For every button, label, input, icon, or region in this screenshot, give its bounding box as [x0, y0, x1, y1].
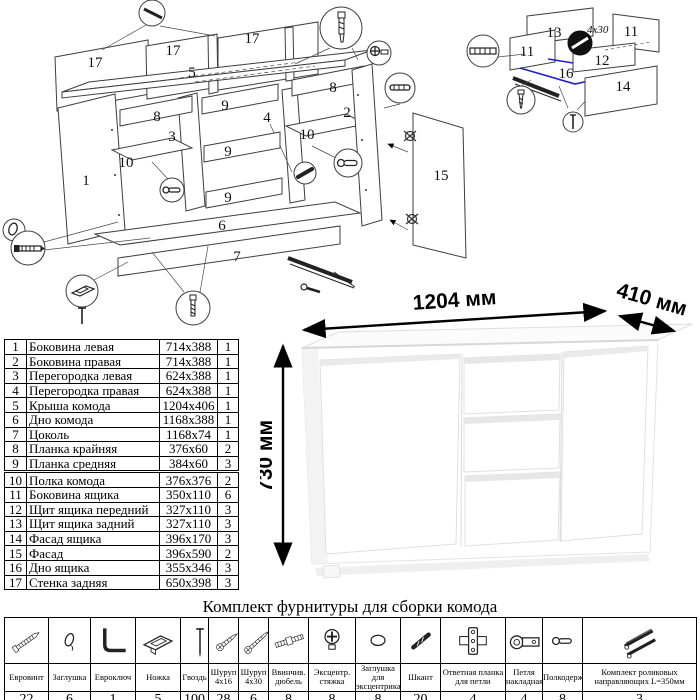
- part-qty-cell: 1: [218, 369, 239, 384]
- parts-table-row: 5 Крыша комода 1204x406 1: [5, 398, 239, 413]
- hardware-names-row: Евровинт Заглушка Евроключ Ножка Гвоздь …: [5, 664, 697, 692]
- drawer-rail-piece: [513, 78, 561, 101]
- hardware-qty-cell: 8: [309, 691, 356, 700]
- hardware-qty-cell: 8: [269, 691, 309, 700]
- parts-table-row: 2 Боковина правая 714x388 1: [5, 354, 239, 369]
- parts-table-row: 6 Дно комода 1168x388 1: [5, 412, 239, 427]
- hardware-icon-cell: [136, 618, 181, 664]
- parts-list-table: 1 Боковина левая 714x388 1 2 Боковина пр…: [4, 339, 239, 590]
- parts-table-row: 7 Цоколь 1168x74 1: [5, 427, 239, 442]
- hardware-name-cell: Петля накладная: [506, 664, 543, 692]
- parts-table-row: 1 Боковина левая 714x388 1: [5, 340, 239, 355]
- part-name-cell: Крыша комода: [27, 398, 160, 413]
- part-number-cell: 9: [5, 456, 27, 472]
- part-size-cell: 396x170: [160, 531, 218, 546]
- hardware-icon-cell: [49, 618, 91, 664]
- door-panel-15: [388, 113, 466, 258]
- hardware-icon-cell: [356, 618, 401, 664]
- part-name-cell: Планка крайняя: [27, 442, 160, 457]
- hardware-icon-cell: [5, 618, 49, 664]
- callout-plug-icon: [3, 219, 25, 241]
- parts-table-row: 11 Боковина ящика 350x110 6: [5, 487, 239, 502]
- part-name-cell: Фасад ящика: [27, 531, 160, 546]
- callout-foot-icon: [66, 262, 128, 324]
- part-size-cell: 714x388: [160, 354, 218, 369]
- hardware-item-icon: [139, 622, 177, 660]
- drawer-side-11-left: [510, 30, 555, 70]
- roller-rail-piece: [288, 258, 355, 292]
- part-name-cell: Щит ящика передний: [27, 502, 160, 517]
- hardware-icon-cell: [441, 618, 506, 664]
- drawer-fascia-14: [585, 66, 657, 116]
- part-qty-cell: 1: [218, 427, 239, 442]
- back-panels-17: [55, 22, 318, 111]
- part-number-cell: 5: [5, 398, 27, 413]
- hardware-name-cell: Ножка: [136, 664, 181, 692]
- drawer-3: [465, 472, 560, 546]
- parts-table-row: 12 Щит ящика передний 327x110 3: [5, 502, 239, 517]
- hardware-item-icon: [544, 622, 582, 660]
- part-number-cell: 16: [5, 560, 27, 575]
- parts-table-row: 13 Щит ящика задний 327x110 3: [5, 517, 239, 532]
- callout-screw-4x30-icon: [568, 31, 592, 55]
- hardware-qty-cell: 5: [136, 691, 181, 700]
- right-door: [561, 346, 648, 541]
- drawer-label-14: 14: [616, 79, 632, 95]
- part-number-cell: 11: [5, 487, 27, 502]
- hardware-item-icon: [181, 622, 209, 660]
- hardware-item-icon: [313, 622, 351, 660]
- hardware-item-icon: [402, 622, 440, 660]
- part-number-cell: 10: [5, 472, 27, 488]
- hardware-icon-cell: [269, 618, 309, 664]
- drawer-label-11a: 11: [520, 44, 534, 60]
- hardware-item-icon: [270, 622, 308, 660]
- part-size-cell: 624x388: [160, 369, 218, 384]
- part-number-cell: 13: [5, 517, 27, 532]
- parts-table-row: 9 Планка средняя 384x60 3: [5, 456, 239, 472]
- part-name-cell: Планка средняя: [27, 456, 160, 472]
- part-size-cell: 384x60: [160, 456, 218, 472]
- part-name-cell: Боковина правая: [27, 354, 160, 369]
- hardware-qty-cell: 28: [209, 691, 239, 700]
- part-qty-cell: 1: [218, 398, 239, 413]
- partition-right-4: [270, 87, 305, 203]
- part-label-15: 15: [434, 168, 449, 184]
- part-label-1: 1: [82, 173, 90, 189]
- drawer-assembly-diagram: 13 11 11 12 16 14 4x30: [455, 0, 700, 145]
- callout-screw-icon: [507, 80, 535, 114]
- drawer-1: [464, 354, 560, 414]
- partition-left-3: [178, 93, 205, 211]
- hardware-qty-cell: 20: [401, 691, 441, 700]
- hardware-icon-cell: [506, 618, 543, 664]
- part-size-cell: 327x110: [160, 517, 218, 532]
- hardware-qty-cell: 8: [356, 691, 401, 700]
- part-label-17a: 17: [88, 55, 104, 71]
- hardware-icon-cell: [543, 618, 583, 664]
- hardware-qty-cell: 6: [239, 691, 269, 700]
- part-number-cell: 14: [5, 531, 27, 546]
- hardware-item-icon: [621, 622, 659, 660]
- part-name-cell: Перегородка левая: [27, 369, 160, 384]
- drawer-label-12: 12: [595, 53, 610, 69]
- part-qty-cell: 6: [218, 487, 239, 502]
- parts-table-row: 3 Перегородка левая 624x388 1: [5, 369, 239, 384]
- hardware-item-icon: [209, 622, 239, 660]
- hardware-item-icon: [359, 622, 397, 660]
- part-label-4: 4: [263, 110, 271, 126]
- hardware-item-icon: [94, 622, 132, 660]
- part-name-cell: Боковина левая: [27, 340, 160, 355]
- part-qty-cell: 1: [218, 340, 239, 355]
- part-size-cell: 327x110: [160, 502, 218, 517]
- drawer-label-13: 13: [547, 25, 562, 41]
- part-size-cell: 624x388: [160, 383, 218, 398]
- part-name-cell: Щит ящика задний: [27, 517, 160, 532]
- hardware-name-cell: Шкант: [401, 664, 441, 692]
- dresser-dimension-drawing: 1204 мм 410 мм 730 мм: [260, 280, 700, 600]
- callout-nail-icon: [102, 0, 215, 50]
- drawer-side-11-right: [613, 14, 659, 52]
- callout-shelf-pin2-icon: [312, 146, 362, 177]
- hardware-name-cell: Полкодержатель: [543, 664, 583, 692]
- callout-shkant-icon: [294, 162, 316, 184]
- parts-table-row: 17 Стенка задняя 650x398 3: [5, 575, 239, 590]
- part-number-cell: 6: [5, 412, 27, 427]
- hardware-icon-cell: [239, 618, 269, 664]
- hardware-kit-title: Комплект фурнитуры для сборки комода: [0, 597, 700, 617]
- drawer-front-12: [573, 42, 651, 72]
- plinth-7: [118, 226, 340, 276]
- part-number-cell: 12: [5, 502, 27, 517]
- part-label-10a: 10: [119, 155, 134, 171]
- callout-euroscrew-icon: [11, 222, 150, 265]
- hardware-name-cell: Ввинчив. дюбель: [269, 664, 309, 692]
- part-label-10b: 10: [300, 127, 315, 143]
- part-label-17c: 17: [245, 31, 261, 47]
- part-qty-cell: 3: [218, 502, 239, 517]
- hardware-qty-cell: 3: [583, 691, 697, 700]
- callout-shelf-pin-icon: [152, 162, 184, 202]
- top-panel-5: [62, 50, 372, 98]
- dresser-body: [302, 324, 692, 578]
- part-size-cell: 650x398: [160, 575, 218, 590]
- screw-size-note: 4x30: [587, 24, 609, 36]
- callout-confirmat-icon: [295, 7, 362, 64]
- part-label-9c: 9: [224, 190, 232, 206]
- parts-table-row: 4 Перегородка правая 624x388 1: [5, 383, 239, 398]
- part-label-9a: 9: [221, 98, 229, 114]
- part-label-6: 6: [218, 218, 226, 234]
- part-label-8b: 8: [329, 80, 337, 96]
- parts-table-row: 16 Дно ящика 355x346 3: [5, 560, 239, 575]
- middle-planks-9: [202, 84, 282, 208]
- parts-list-body: 1 Боковина левая 714x388 1 2 Боковина пр…: [5, 340, 239, 590]
- part-size-cell: 376x376: [160, 472, 218, 488]
- drawer-bottom-16: [520, 59, 625, 110]
- hardware-name-cell: Гвоздь: [181, 664, 209, 692]
- part-qty-cell: 1: [218, 354, 239, 369]
- part-size-cell: 396x590: [160, 546, 218, 561]
- hardware-icon-cell: [401, 618, 441, 664]
- drawer-2: [464, 414, 560, 472]
- part-number-cell: 2: [5, 354, 27, 369]
- part-number-cell: 4: [5, 383, 27, 398]
- hardware-name-cell: Ответная планка для петли: [441, 664, 506, 692]
- drawer-label-16: 16: [559, 66, 575, 82]
- hardware-name-cell: Заглушка: [49, 664, 91, 692]
- hardware-name-cell: Шуруп 4x16: [209, 664, 239, 692]
- hardware-name-cell: Комплект роликовых направляющих L=350мм: [583, 664, 697, 692]
- parts-table-row: 8 Планка крайняя 376x60 2: [5, 442, 239, 457]
- hardware-icon-cell: [309, 618, 356, 664]
- callout-confirmat2-icon: [152, 246, 210, 325]
- hardware-item-icon: [239, 622, 269, 660]
- part-qty-cell: 2: [218, 472, 239, 488]
- hardware-qty-cell: 100: [181, 691, 209, 700]
- part-qty-cell: 3: [218, 575, 239, 590]
- part-number-cell: 3: [5, 369, 27, 384]
- part-label-5: 5: [188, 65, 196, 81]
- hardware-icon-cell: [181, 618, 209, 664]
- hardware-qty-cell: 22: [5, 691, 49, 700]
- part-name-cell: Боковина ящика: [27, 487, 160, 502]
- dimension-lines: [283, 311, 674, 564]
- part-label-17b: 17: [166, 43, 182, 59]
- part-qty-cell: 1: [218, 383, 239, 398]
- hardware-qty-cell: 1: [91, 691, 136, 700]
- hardware-name-cell: Эксцентр. стяжка: [309, 664, 356, 692]
- part-size-cell: 376x60: [160, 442, 218, 457]
- hardware-item-icon: [51, 622, 89, 660]
- part-number-cell: 17: [5, 575, 27, 590]
- part-label-7: 7: [233, 249, 241, 265]
- callout-dowel-icon: [384, 73, 415, 108]
- part-name-cell: Цоколь: [27, 427, 160, 442]
- side-panel-2: [352, 64, 382, 226]
- part-qty-cell: 3: [218, 531, 239, 546]
- left-door: [320, 354, 460, 554]
- part-name-cell: Дно ящика: [27, 560, 160, 575]
- hardware-name-cell: Заглушка для эксцентрика: [356, 664, 401, 692]
- edge-planks-8: [120, 66, 364, 126]
- part-number-cell: 1: [5, 340, 27, 355]
- part-qty-cell: 2: [218, 546, 239, 561]
- part-number-cell: 8: [5, 442, 27, 457]
- parts-table-row: 14 Фасад ящика 396x170 3: [5, 531, 239, 546]
- hardware-name-cell: Шуруп 4x30: [239, 664, 269, 692]
- hardware-item-icon: [454, 622, 492, 660]
- part-qty-cell: 1: [218, 412, 239, 427]
- part-qty-cell: 3: [218, 456, 239, 472]
- part-name-cell: Стенка задняя: [27, 575, 160, 590]
- hardware-icon-cell: [91, 618, 136, 664]
- side-panel-1: [58, 94, 125, 244]
- shelves-10: [112, 114, 366, 160]
- hardware-name-cell: Евроключ: [91, 664, 136, 692]
- bottom-panel-6: [95, 202, 360, 245]
- hardware-kit-table: Евровинт Заглушка Евроключ Ножка Гвоздь …: [4, 617, 697, 700]
- height-dimension-label: 730 мм: [260, 420, 277, 492]
- part-size-cell: 355x346: [160, 560, 218, 575]
- part-size-cell: 1168x388: [160, 412, 218, 427]
- part-qty-cell: 3: [218, 517, 239, 532]
- part-name-cell: Перегородка правая: [27, 383, 160, 398]
- drawer-back-13: [527, 8, 593, 44]
- part-number-cell: 15: [5, 546, 27, 561]
- main-assembly-diagram: 17 17 17 5 8 8 3 4 9 9 9 10 10 1 2 6 7 1…: [0, 0, 520, 340]
- part-name-cell: Фасад: [27, 546, 160, 561]
- hinge-icon: [404, 131, 418, 224]
- depth-dimension-label: 410 мм: [614, 280, 690, 321]
- callout-rail-icon: [467, 35, 525, 67]
- part-label-8a: 8: [153, 109, 161, 125]
- hardware-qty-cell: 4: [506, 691, 543, 700]
- part-name-cell: Полка комода: [27, 472, 160, 488]
- hardware-icon-cell: [209, 618, 239, 664]
- part-size-cell: 1168x74: [160, 427, 218, 442]
- part-qty-cell: 3: [218, 560, 239, 575]
- part-label-3: 3: [168, 129, 176, 145]
- parts-table-row: 15 Фасад 396x590 2: [5, 546, 239, 561]
- part-size-cell: 1204x406: [160, 398, 218, 413]
- hardware-qty-cell: 6: [49, 691, 91, 700]
- hardware-qty-cell: 4: [441, 691, 506, 700]
- parts-table-row: 10 Полка комода 376x376 2: [5, 472, 239, 488]
- drawer-label-11b: 11: [624, 24, 638, 40]
- part-qty-cell: 2: [218, 442, 239, 457]
- part-number-cell: 7: [5, 427, 27, 442]
- hardware-item-icon: [506, 622, 543, 660]
- hardware-qty-row: 22 6 1 5 100 28 6 8 8 8: [5, 691, 697, 700]
- part-label-2: 2: [343, 105, 351, 121]
- hardware-qty-cell: 8: [543, 691, 583, 700]
- hardware-name-cell: Евровинт: [5, 664, 49, 692]
- callout-nail-icon: [563, 112, 583, 132]
- part-size-cell: 350x110: [160, 487, 218, 502]
- part-size-cell: 714x388: [160, 340, 218, 355]
- hardware-icon-cell: [583, 618, 697, 664]
- hardware-icons-row: [5, 618, 697, 664]
- hardware-item-icon: [8, 622, 46, 660]
- callout-cam-icon: [367, 41, 391, 65]
- part-name-cell: Дно комода: [27, 412, 160, 427]
- assembly-instruction-sheet: 17 17 17 5 8 8 3 4 9 9 9 10 10 1 2 6 7 1…: [0, 0, 700, 700]
- part-label-9b: 9: [224, 144, 232, 160]
- width-dimension-label: 1204 мм: [412, 286, 497, 315]
